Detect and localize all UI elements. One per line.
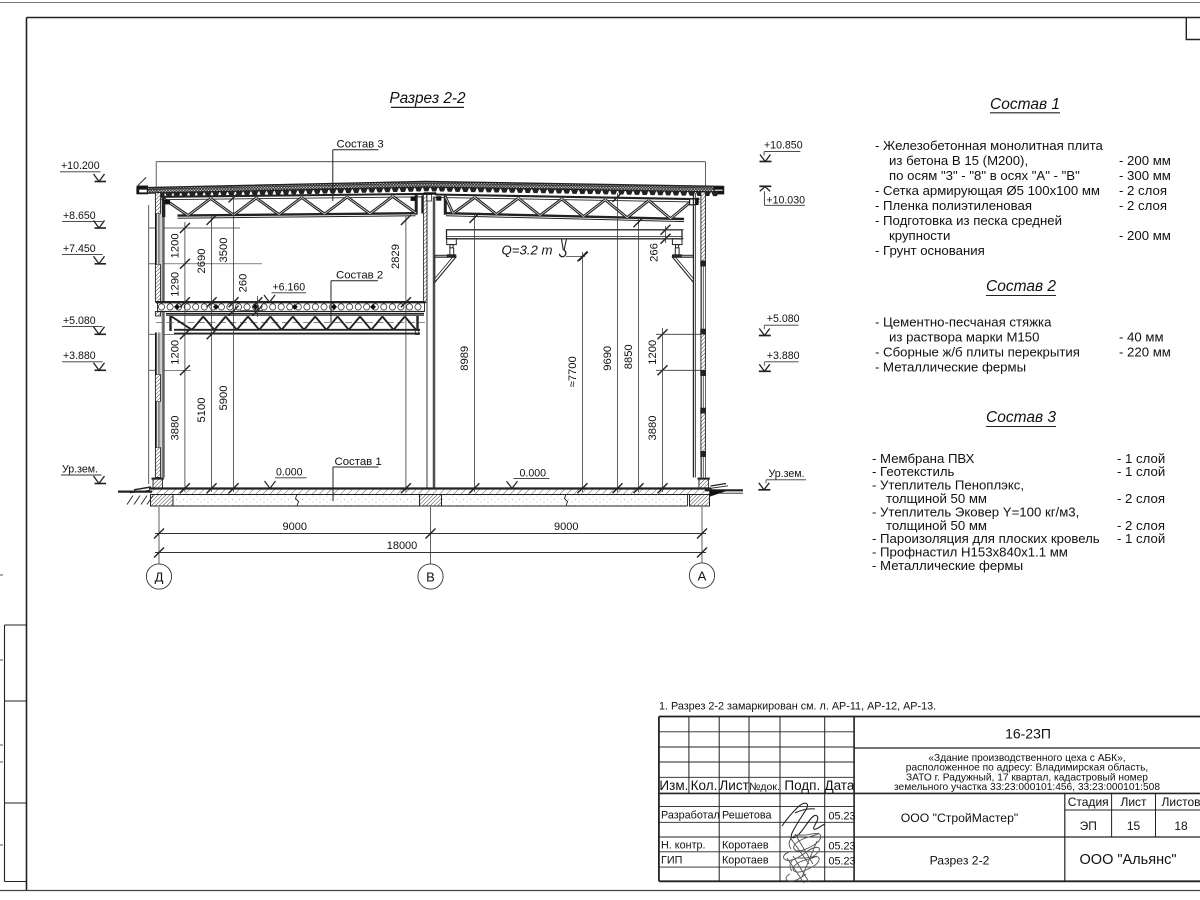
svg-text:+5.080: +5.080 [63,315,96,327]
svg-text:Q=3.2 т: Q=3.2 т [502,242,553,257]
svg-text:Изм.: Изм. [659,778,688,793]
svg-text:+3.880: +3.880 [767,350,800,362]
svg-text:- Металлические фермы: - Металлические фермы [875,360,1026,375]
svg-text:Ур.зем.: Ур.зем. [769,468,805,480]
svg-text:ООО "СтройМастер": ООО "СтройМастер" [901,811,1018,825]
svg-text:15: 15 [1127,819,1141,833]
svg-text:1200: 1200 [170,233,182,258]
svg-text:1200: 1200 [170,340,182,365]
svg-text:1. Разрез 2-2 замаркирован см.: 1. Разрез 2-2 замаркирован см. л. АР-11,… [659,701,936,713]
svg-text:ООО "Альянс": ООО "Альянс" [1080,852,1177,868]
svg-text:- Сетка армирующая Ø5 100х100: - Сетка армирующая Ø5 100х100 мм [875,183,1100,198]
svg-text:5900: 5900 [218,386,230,411]
svg-text:0.000: 0.000 [520,467,547,479]
svg-text:№док.: №док. [749,781,780,793]
svg-text:18: 18 [1174,819,1188,833]
svg-text:3880: 3880 [647,416,659,441]
svg-text:Стадия: Стадия [1068,795,1109,809]
svg-text:8850: 8850 [623,344,635,369]
svg-text:5100: 5100 [196,398,208,423]
svg-text:2829: 2829 [390,244,402,269]
svg-text:Дата: Дата [824,778,854,793]
svg-text:- 2 слоя: - 2 слоя [1117,491,1165,506]
svg-text:+3.880: +3.880 [63,350,96,362]
svg-text:+5.080: +5.080 [767,313,800,325]
svg-text:18000: 18000 [387,540,418,552]
svg-text:Разрез 2-2: Разрез 2-2 [930,854,990,868]
svg-text:из бетона В 15 (М200),: из бетона В 15 (М200), [889,153,1028,168]
svg-text:- 1 слой: - 1 слой [1117,531,1165,546]
svg-text:0.000: 0.000 [276,466,303,478]
svg-text:Листов: Листов [1162,795,1200,809]
svg-text:- 200 мм: - 200 мм [1119,228,1171,243]
svg-text:- Грунт основания: - Грунт основания [875,243,985,258]
svg-text:2690: 2690 [196,249,208,274]
svg-text:+7.450: +7.450 [63,243,96,255]
svg-text:Коротаев: Коротаев [722,839,769,851]
svg-text:- Цементно-песчаная стяжка: - Цементно-песчаная стяжка [875,315,1052,330]
svg-text:Разработал: Разработал [661,809,720,821]
svg-text:из раствора марки М150: из раствора марки М150 [889,330,1039,345]
svg-text:Подп.: Подп. [784,778,820,793]
svg-text:- 40 мм: - 40 мм [1119,330,1164,345]
svg-text:Кол.: Кол. [691,778,718,793]
svg-text:Лист: Лист [719,778,748,793]
svg-text:Состав 1: Состав 1 [335,456,382,468]
svg-text:Состав 3: Состав 3 [986,409,1056,426]
svg-text:Состав 2: Состав 2 [986,278,1056,295]
svg-text:- 200 мм: - 200 мм [1119,153,1171,168]
svg-text:по осям "3" - "8" в осях "А" -: по осям "3" - "8" в осях "А" - "В" [889,168,1080,183]
svg-text:3500: 3500 [218,238,230,263]
svg-text:05.23: 05.23 [829,810,856,822]
svg-text:- Железобетонная монолитная п: - Железобетонная монолитная плита [875,138,1104,153]
svg-text:9000: 9000 [283,521,307,533]
svg-text:≈7700: ≈7700 [567,356,579,387]
svg-text:266: 266 [649,243,661,262]
svg-text:1290: 1290 [170,272,182,297]
svg-text:Состав 2: Состав 2 [336,270,383,282]
svg-text:Решетова: Решетова [722,809,772,821]
svg-text:- Сборные ж/б плиты перекрытия: - Сборные ж/б плиты перекрытия [875,345,1080,360]
svg-text:3880: 3880 [170,416,182,441]
svg-text:05.23: 05.23 [829,855,856,867]
svg-text:9000: 9000 [554,521,578,533]
svg-text:ГИП: ГИП [661,854,682,866]
svg-text:А: А [698,568,707,583]
svg-text:16-23П: 16-23П [1005,726,1051,742]
svg-text:- 2 слоя: - 2 слоя [1119,183,1167,198]
svg-text:Коротаев: Коротаев [722,854,769,866]
svg-text:9690: 9690 [602,346,614,371]
svg-text:05.23: 05.23 [829,840,856,852]
svg-text:Ур.зем.: Ур.зем. [62,463,98,475]
svg-text:+8.650: +8.650 [63,210,96,222]
svg-text:- 1 слой: - 1 слой [1117,464,1165,479]
svg-text:- 220 мм: - 220 мм [1119,345,1171,360]
svg-text:Д: Д [155,569,164,584]
svg-text:Н. контр.: Н. контр. [661,839,706,851]
svg-text:- 2 слоя: - 2 слоя [1119,198,1167,213]
svg-text:В: В [426,569,435,584]
svg-text:- Пленка полиэтиленовая: - Пленка полиэтиленовая [875,198,1032,213]
svg-text:земельного участка 33:23:00010: земельного участка 33:23:000101:456, 33:… [894,782,1160,793]
svg-text:1200: 1200 [647,340,659,365]
svg-text:крупности: крупности [889,228,950,243]
svg-text:Состав 1: Состав 1 [990,96,1060,113]
svg-text:+10.030: +10.030 [766,195,805,207]
svg-text:Лист: Лист [1120,795,1147,809]
svg-text:+6.160: +6.160 [273,281,306,293]
svg-text:8989: 8989 [459,346,471,371]
svg-text:- 300 мм: - 300 мм [1119,168,1171,183]
svg-text:+10.850: +10.850 [764,140,803,152]
svg-text:+10.200: +10.200 [61,160,100,172]
svg-text:260: 260 [238,274,250,293]
svg-text:ЭП: ЭП [1080,819,1097,833]
svg-text:Состав 3: Состав 3 [337,139,384,151]
svg-text:- Подготовка из песка средней: - Подготовка из песка средней [875,213,1062,228]
svg-text:Разрез 2-2: Разрез 2-2 [389,90,466,107]
svg-text:- Металлические фермы: - Металлические фермы [872,558,1023,573]
